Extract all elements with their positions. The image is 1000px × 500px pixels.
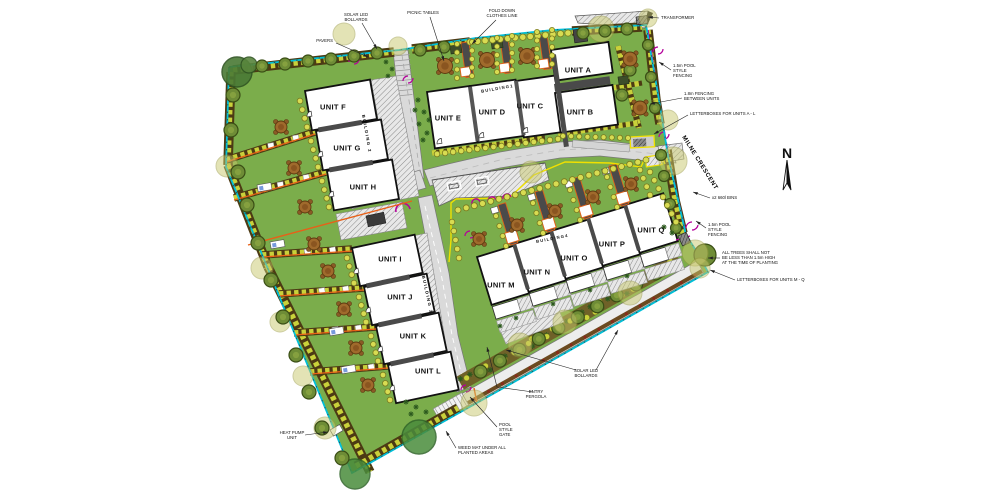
svg-text:UNIT G: UNIT G <box>333 144 360 153</box>
svg-text:UNIT H: UNIT H <box>350 183 377 192</box>
svg-text:UNIT C: UNIT C <box>517 102 544 111</box>
svg-text:UNIT M: UNIT M <box>487 281 515 290</box>
svg-text:UNIT A: UNIT A <box>565 66 592 75</box>
svg-text:N: N <box>782 145 792 161</box>
svg-text:UNIT J: UNIT J <box>387 293 413 302</box>
svg-text:PICNIC TABLES: PICNIC TABLES <box>407 10 439 15</box>
svg-text:UNIT P: UNIT P <box>599 240 625 249</box>
svg-text:PERGOLA: PERGOLA <box>526 394 547 399</box>
svg-text:LETTERBOXES FOR UNITS M - Q: LETTERBOXES FOR UNITS M - Q <box>737 277 805 282</box>
svg-text:BOLLARDS: BOLLARDS <box>575 373 598 378</box>
svg-text:TRANSFORMER: TRANSFORMER <box>661 15 694 20</box>
svg-text:GATE: GATE <box>499 432 511 437</box>
svg-text:UNIT: UNIT <box>287 435 297 440</box>
svg-text:UNIT D: UNIT D <box>479 108 506 117</box>
svg-text:AT THE TIME OF PLANTING: AT THE TIME OF PLANTING <box>722 260 779 265</box>
svg-text:UNIT I: UNIT I <box>378 255 401 264</box>
svg-text:FENCING: FENCING <box>708 232 728 237</box>
svg-text:UNIT B: UNIT B <box>567 108 594 117</box>
svg-text:PLANTED AREAS: PLANTED AREAS <box>458 450 493 455</box>
svg-text:UNIT L: UNIT L <box>415 367 441 376</box>
svg-text:CLOTHES LINE: CLOTHES LINE <box>486 13 517 18</box>
svg-text:UNIT O: UNIT O <box>560 254 587 263</box>
svg-text:UNIT E: UNIT E <box>435 114 461 123</box>
svg-text:FENCING: FENCING <box>673 73 693 78</box>
svg-text:UNIT F: UNIT F <box>320 103 346 112</box>
svg-text:x2 660l BINS: x2 660l BINS <box>712 195 737 200</box>
svg-text:BOLLARDS: BOLLARDS <box>345 17 368 22</box>
svg-text:LETTERBOXES FOR UNITS A - L: LETTERBOXES FOR UNITS A - L <box>690 111 756 116</box>
svg-text:UNIT K: UNIT K <box>400 332 427 341</box>
svg-text:PAVERS: PAVERS <box>316 38 333 43</box>
svg-text:UNIT N: UNIT N <box>524 268 551 277</box>
svg-text:UNIT Q: UNIT Q <box>637 226 664 235</box>
svg-text:BETWEEN UNITS: BETWEEN UNITS <box>684 96 719 101</box>
